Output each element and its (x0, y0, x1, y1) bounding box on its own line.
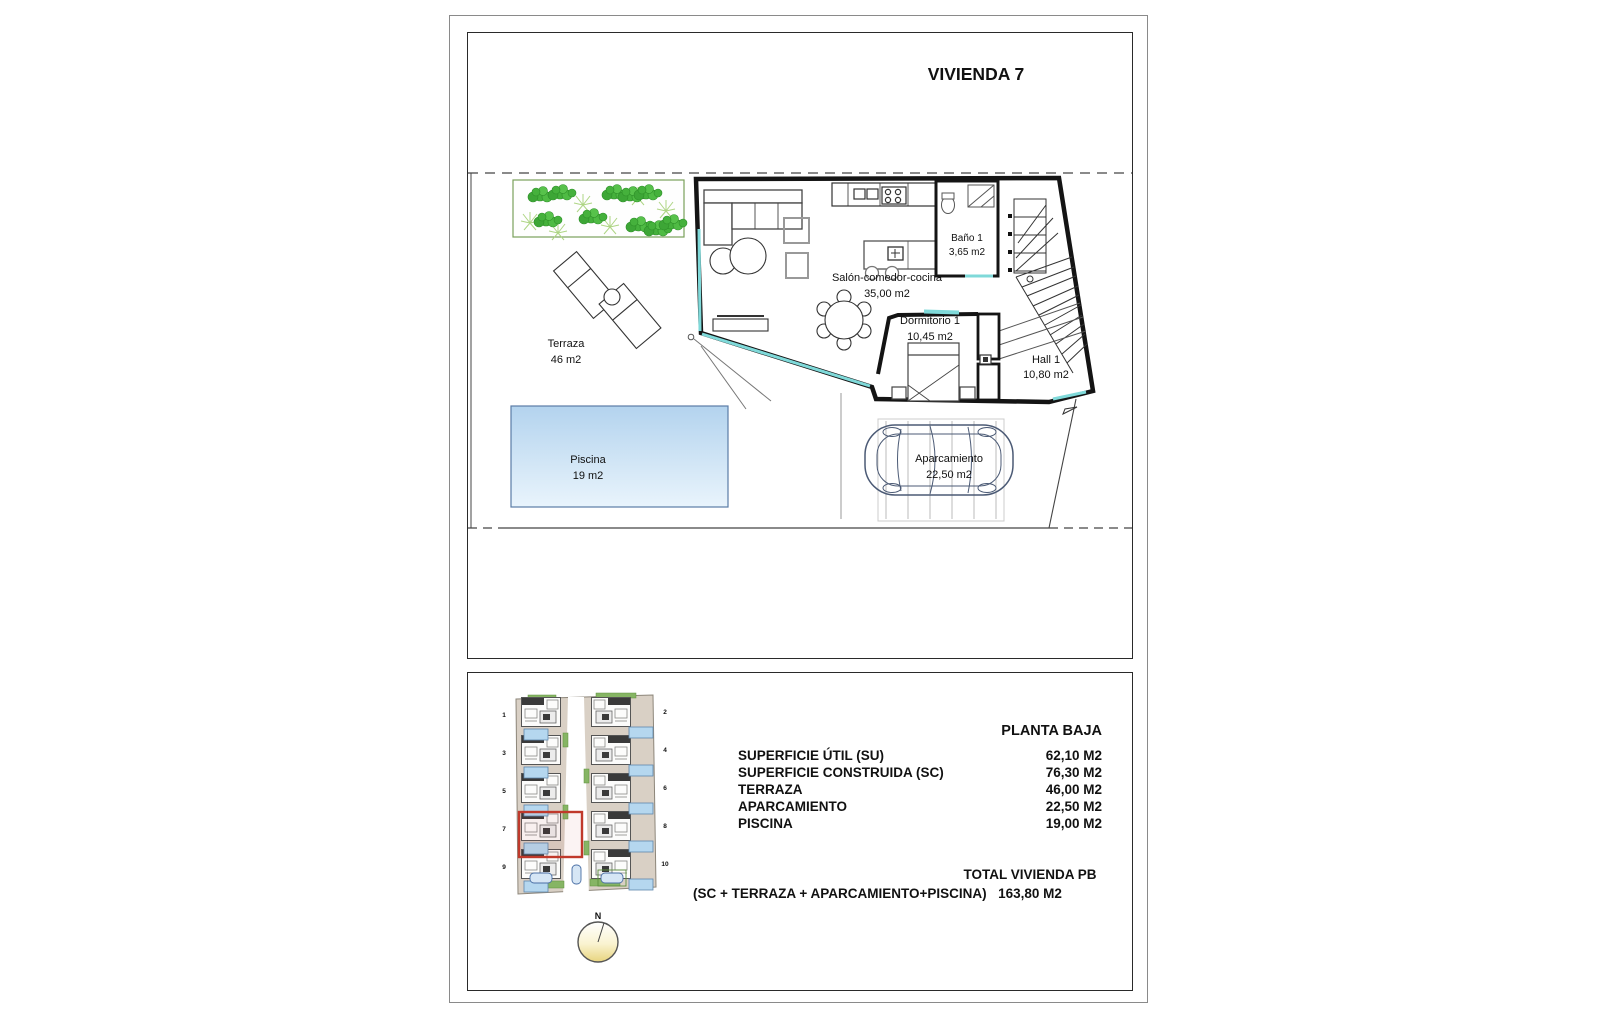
summary-panel: 1 3 5 7 9 2 4 6 8 10 N PLANTA BAJA (467, 672, 1133, 991)
summary-heading: PLANTA BAJA (1001, 723, 1102, 739)
svg-text:Baño 1: Baño 1 (951, 233, 983, 244)
summary-total-value: 163,80 M2 (950, 884, 1110, 903)
svg-text:10,45 m2: 10,45 m2 (907, 331, 953, 343)
svg-text:19 m2: 19 m2 (573, 470, 604, 482)
svg-text:Hall 1: Hall 1 (1032, 354, 1060, 366)
svg-text:Aparcamiento: Aparcamiento (915, 453, 983, 465)
page-title: VIVIENDA 7 (928, 64, 1025, 84)
plan-sheet: VIVIENDA 7 (449, 15, 1148, 1003)
summary-row: SUPERFICIE ÚTIL (SU)62,10 M2 (738, 747, 1102, 764)
lounge-chairs (554, 252, 661, 349)
summary-total-label: TOTAL VIVIENDA PB (950, 865, 1110, 884)
svg-text:3,65 m2: 3,65 m2 (949, 247, 986, 258)
svg-text:46 m2: 46 m2 (551, 354, 582, 366)
entrance-arrow-icon (1063, 407, 1077, 414)
floorplan-drawing: VIVIENDA 7 (468, 33, 1132, 658)
svg-text:22,50 m2: 22,50 m2 (926, 469, 972, 481)
summary-row: APARCAMIENTO22,50 M2 (738, 798, 1102, 815)
garden-bed (513, 180, 687, 240)
summary-row: SUPERFICIE CONSTRUIDA (SC)76,30 M2 (738, 764, 1102, 781)
summary-rows: SUPERFICIE ÚTIL (SU)62,10 M2 SUPERFICIE … (738, 747, 1102, 832)
summary-row: TERRAZA46,00 M2 (738, 781, 1102, 798)
floorplan-panel: VIVIENDA 7 (467, 32, 1133, 659)
bathroom: Baño 1 3,65 m2 (936, 181, 998, 279)
room-aparcamiento-label: Aparcamiento 22,50 m2 (915, 453, 983, 481)
kitchen-counter (832, 183, 936, 206)
svg-text:Terraza: Terraza (548, 338, 586, 350)
summary-formula: (SC + TERRAZA + APARCAMIENTO+PISCINA) (693, 886, 987, 901)
area-summary: PLANTA BAJA SUPERFICIE ÚTIL (SU)62,10 M2… (468, 673, 1132, 990)
wall-marker-icon (688, 334, 694, 340)
pool: Piscina 19 m2 (511, 406, 728, 507)
svg-text:10,80 m2: 10,80 m2 (1023, 369, 1069, 381)
summary-total: TOTAL VIVIENDA PB 163,80 M2 (950, 865, 1110, 903)
svg-text:Salón-comedor-cocina: Salón-comedor-cocina (832, 272, 943, 284)
svg-text:35,00 m2: 35,00 m2 (864, 288, 910, 300)
summary-row: PISCINA19,00 M2 (738, 815, 1102, 832)
svg-text:Dormitorio 1: Dormitorio 1 (900, 315, 960, 327)
svg-text:Piscina: Piscina (570, 454, 606, 466)
room-terraza-label: Terraza 46 m2 (548, 338, 586, 366)
